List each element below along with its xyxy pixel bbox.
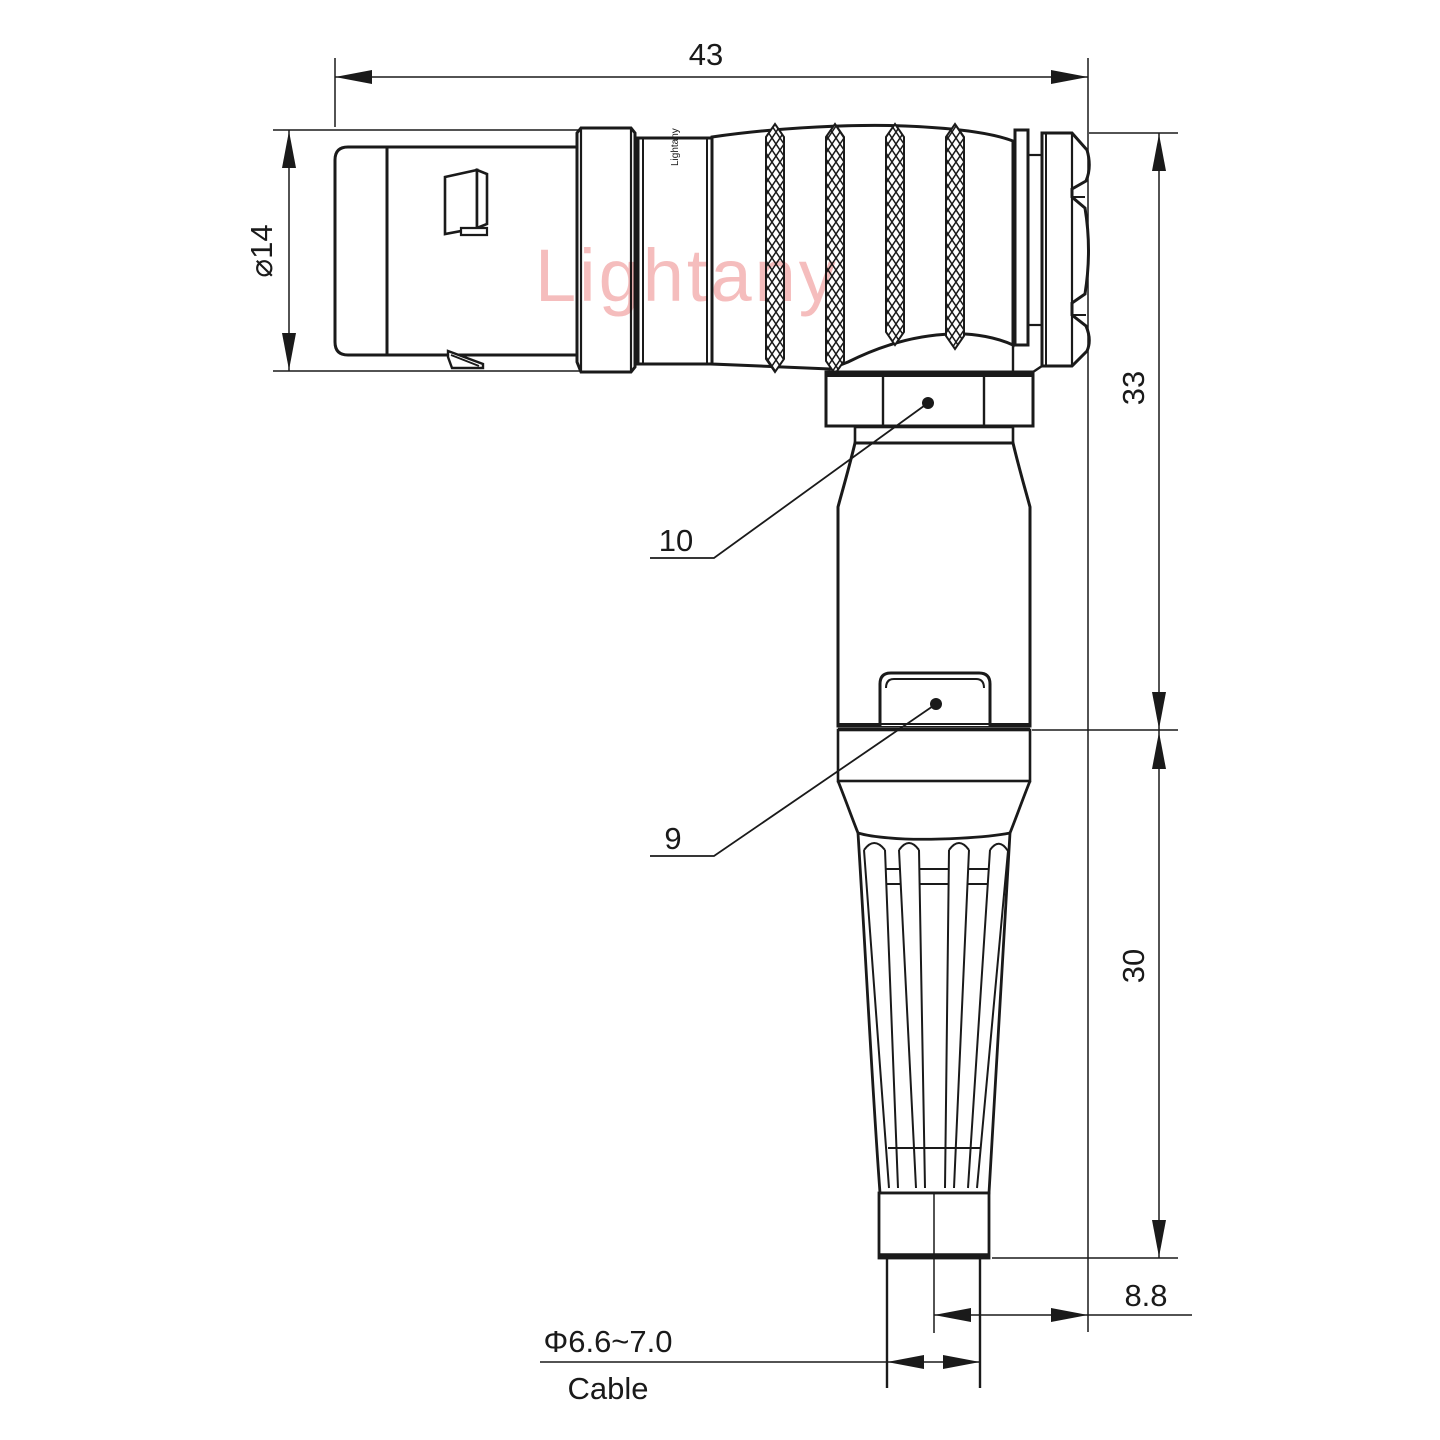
arrow-43-left bbox=[335, 70, 372, 84]
arrow-14-bottom bbox=[282, 333, 296, 370]
end-bell bbox=[1042, 133, 1089, 366]
part-label-latch-clip: 9 bbox=[664, 821, 681, 856]
arrow-30-bottom bbox=[1152, 1220, 1166, 1257]
technical-drawing-page: 43 ⌀14 33 30 8.8 Φ6.6~7.0 Cable 10 9 Lig… bbox=[0, 0, 1440, 1440]
knurl-band-3 bbox=[886, 124, 904, 345]
arrow-30-top bbox=[1152, 732, 1166, 769]
dim-offset-label: 8.8 bbox=[1124, 1278, 1167, 1313]
latch-window-side bbox=[477, 170, 487, 228]
vertical-body bbox=[826, 372, 1033, 1388]
dim-lower-height-label: 30 bbox=[1116, 949, 1151, 983]
cable-label: Cable bbox=[568, 1371, 649, 1406]
watermark-text: Lightany bbox=[535, 234, 839, 317]
arrow-88-right bbox=[1051, 1308, 1088, 1322]
leader-dot-10 bbox=[922, 397, 934, 409]
gland-band bbox=[838, 730, 1030, 781]
arrow-43-right bbox=[1051, 70, 1088, 84]
dim-upper-height-label: 33 bbox=[1116, 371, 1151, 405]
latch-window-face bbox=[445, 170, 477, 234]
strain-relief-shoulder bbox=[838, 781, 1030, 833]
dim-cable-diameter-label: Φ6.6~7.0 bbox=[543, 1324, 672, 1359]
leader-dot-9 bbox=[930, 698, 942, 710]
arrow-33-bottom bbox=[1152, 692, 1166, 729]
arrow-cable-right bbox=[943, 1355, 980, 1369]
dim-overall-length-label: 43 bbox=[689, 37, 723, 72]
latch-window-lip bbox=[461, 228, 487, 235]
dim-front-diameter-label: ⌀14 bbox=[244, 224, 279, 277]
elbow-corner-lines bbox=[1013, 345, 1042, 372]
part-label-coupling-nut: 10 bbox=[659, 523, 693, 558]
arrow-cable-left bbox=[887, 1355, 924, 1369]
arrow-33-top bbox=[1152, 134, 1166, 171]
neck-ring bbox=[855, 427, 1013, 443]
body-logo-text: Lightany bbox=[670, 128, 681, 166]
connector-drawing-svg: 43 ⌀14 33 30 8.8 Φ6.6~7.0 Cable 10 9 Lig… bbox=[0, 0, 1440, 1440]
arrow-88-left bbox=[934, 1308, 971, 1322]
rear-plate bbox=[1015, 130, 1028, 345]
knurl-band-4 bbox=[946, 124, 964, 349]
arrow-14-top bbox=[282, 131, 296, 168]
